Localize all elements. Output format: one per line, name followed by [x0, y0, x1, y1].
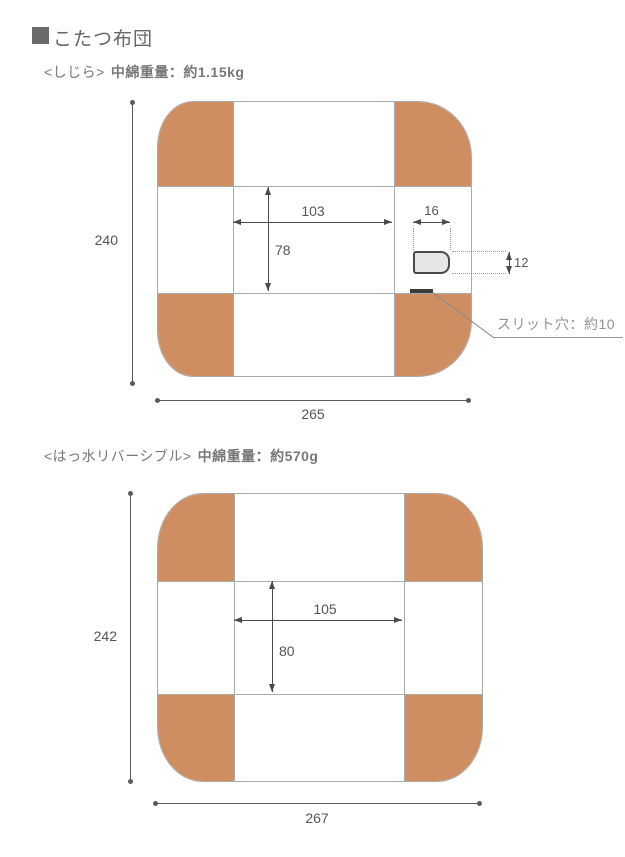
kotatsu-futon-spec-diagram: こたつ布団 <しじら>中綿重量：約1.15kg 240 265 103 78 1…: [0, 0, 625, 857]
inner-width-arrow: [233, 222, 392, 223]
pocket-guide-dotted-right: [450, 228, 451, 250]
slit-hole-mark: [410, 289, 433, 293]
height-dimension-label: 242: [91, 628, 117, 644]
inner-height-label: 80: [279, 643, 295, 659]
section1-fabric-label: <しじら>: [44, 64, 105, 80]
inner-width-arrow: [234, 620, 402, 621]
pocket-width-arrow: [413, 222, 450, 223]
pocket-guide-dotted-bottom: [452, 273, 506, 274]
corner-patch-top-left: [158, 494, 234, 581]
corner-patch-top-left: [158, 102, 233, 186]
pocket-guide-dotted-top: [452, 251, 506, 252]
grid-line-vertical-1: [234, 494, 235, 781]
corner-patch-bottom-left: [158, 293, 233, 377]
pocket-height-label: 12: [514, 255, 528, 270]
width-dimension-label: 267: [287, 810, 347, 826]
section1-fill-weight: 中綿重量：約1.15kg: [111, 64, 245, 80]
grid-line-horizontal-1: [158, 581, 482, 582]
page-title: こたつ布団: [53, 24, 153, 51]
section1-title: <しじら>中綿重量：約1.15kg: [44, 62, 244, 82]
inner-height-arrow: [272, 581, 273, 692]
width-dimension-line: [155, 803, 480, 804]
height-dimension-label: 240: [92, 232, 118, 248]
grid-line-horizontal-2: [158, 293, 471, 294]
grid-line-horizontal-2: [158, 694, 482, 695]
grid-line-vertical-2: [404, 494, 405, 781]
slit-note-underline: [494, 337, 623, 338]
width-dimension-line: [157, 400, 469, 401]
corner-patch-top-right: [404, 494, 483, 581]
inner-height-label: 78: [275, 242, 291, 258]
corner-patch-bottom-left: [158, 694, 234, 782]
slit-note-label: スリット穴：約10: [497, 314, 615, 334]
grid-line-horizontal-1: [158, 186, 471, 187]
inner-width-label: 103: [283, 203, 343, 219]
corner-patch-bottom-right: [404, 694, 483, 782]
height-dimension-line: [132, 102, 133, 384]
heater-pocket: [413, 251, 450, 274]
corner-patch-top-right: [394, 102, 472, 186]
height-dimension-line: [130, 493, 131, 782]
width-dimension-label: 265: [283, 406, 343, 422]
pocket-height-arrow: [509, 252, 510, 274]
inner-height-arrow: [268, 187, 269, 291]
grid-line-vertical-2: [394, 102, 395, 376]
pocket-width-label: 16: [413, 203, 450, 218]
inner-width-label: 105: [295, 601, 355, 617]
section2-fabric-label: <はっ水リバーシブル>: [44, 448, 192, 464]
section2-fill-weight: 中綿重量：約570g: [198, 448, 319, 464]
grid-line-vertical-1: [233, 102, 234, 376]
pocket-guide-dotted-left: [413, 228, 414, 250]
futon-shape-shijira: [157, 101, 472, 377]
heading-square-bullet: [32, 27, 49, 44]
corner-patch-bottom-right: [394, 293, 472, 377]
section2-title: <はっ水リバーシブル>中綿重量：約570g: [44, 446, 319, 466]
futon-shape-reversible: [157, 493, 483, 782]
